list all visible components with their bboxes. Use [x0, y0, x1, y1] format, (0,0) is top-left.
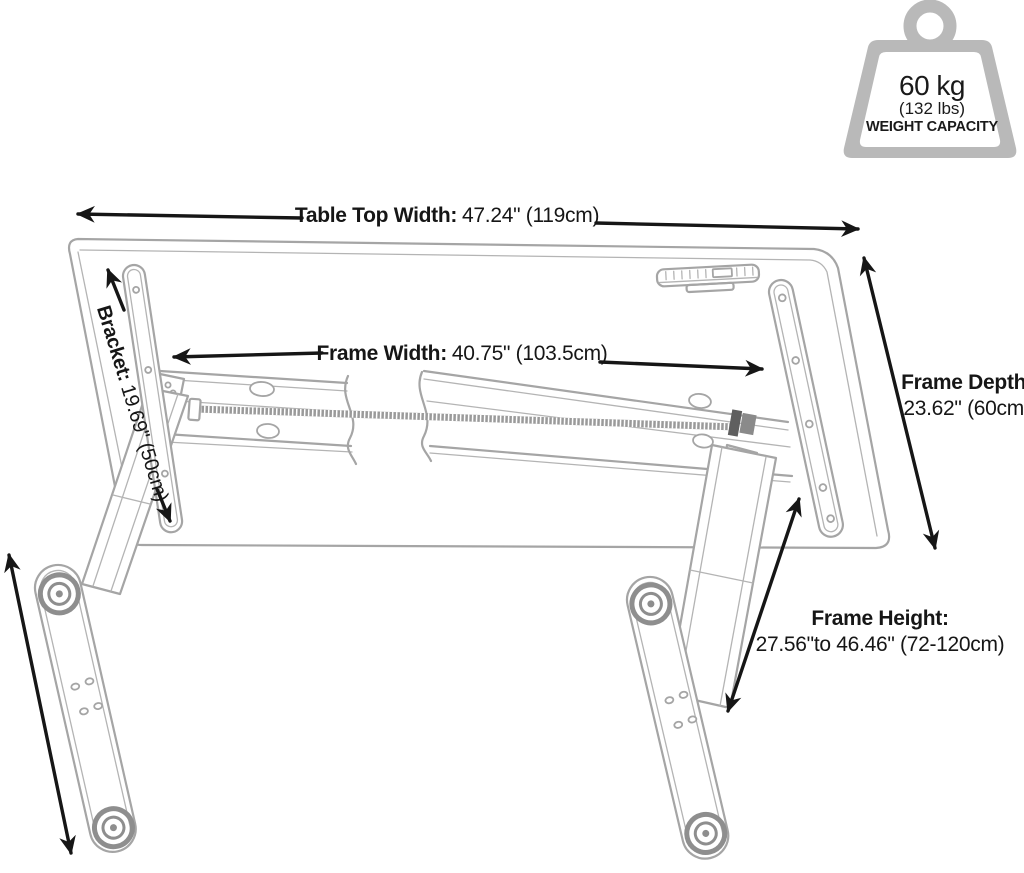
- weight-capacity-alt-value: (132 lbs): [899, 99, 965, 119]
- frame-width-value: 40.75" (103.5cm): [452, 342, 608, 365]
- table-top-width-value: 47.24" (119cm): [462, 204, 599, 227]
- weight-capacity-value: 60 kg: [899, 70, 965, 102]
- weight-capacity-label: WEIGHT CAPACITY: [866, 119, 998, 135]
- keypad-display: [713, 268, 732, 277]
- frame-depth-value: 23.62" (60cm): [901, 396, 1024, 422]
- left-foot: [30, 560, 140, 856]
- frame-height-label: Frame Height: 27.56"to 46.46" (72-120cm): [756, 606, 1005, 658]
- frame-depth-label-text: Frame Depth:: [901, 370, 1024, 396]
- frame-width-label: Frame Width:40.75" (103.5cm): [317, 342, 608, 366]
- table-top-width-label: Table Top Width:47.24" (119cm): [295, 204, 599, 228]
- frame-width-label-text: Frame Width:: [317, 342, 447, 365]
- frame-depth-label: Frame Depth: 23.62" (60cm): [901, 370, 1024, 422]
- table-top-width-label-text: Table Top Width:: [295, 204, 457, 227]
- frame-height-value: 27.56"to 46.46" (72-120cm): [756, 632, 1005, 658]
- frame-height-label-text: Frame Height:: [756, 606, 1005, 632]
- desk-frame-dimension-diagram: Table Top Width:47.24" (119cm) Frame Wid…: [0, 0, 1024, 873]
